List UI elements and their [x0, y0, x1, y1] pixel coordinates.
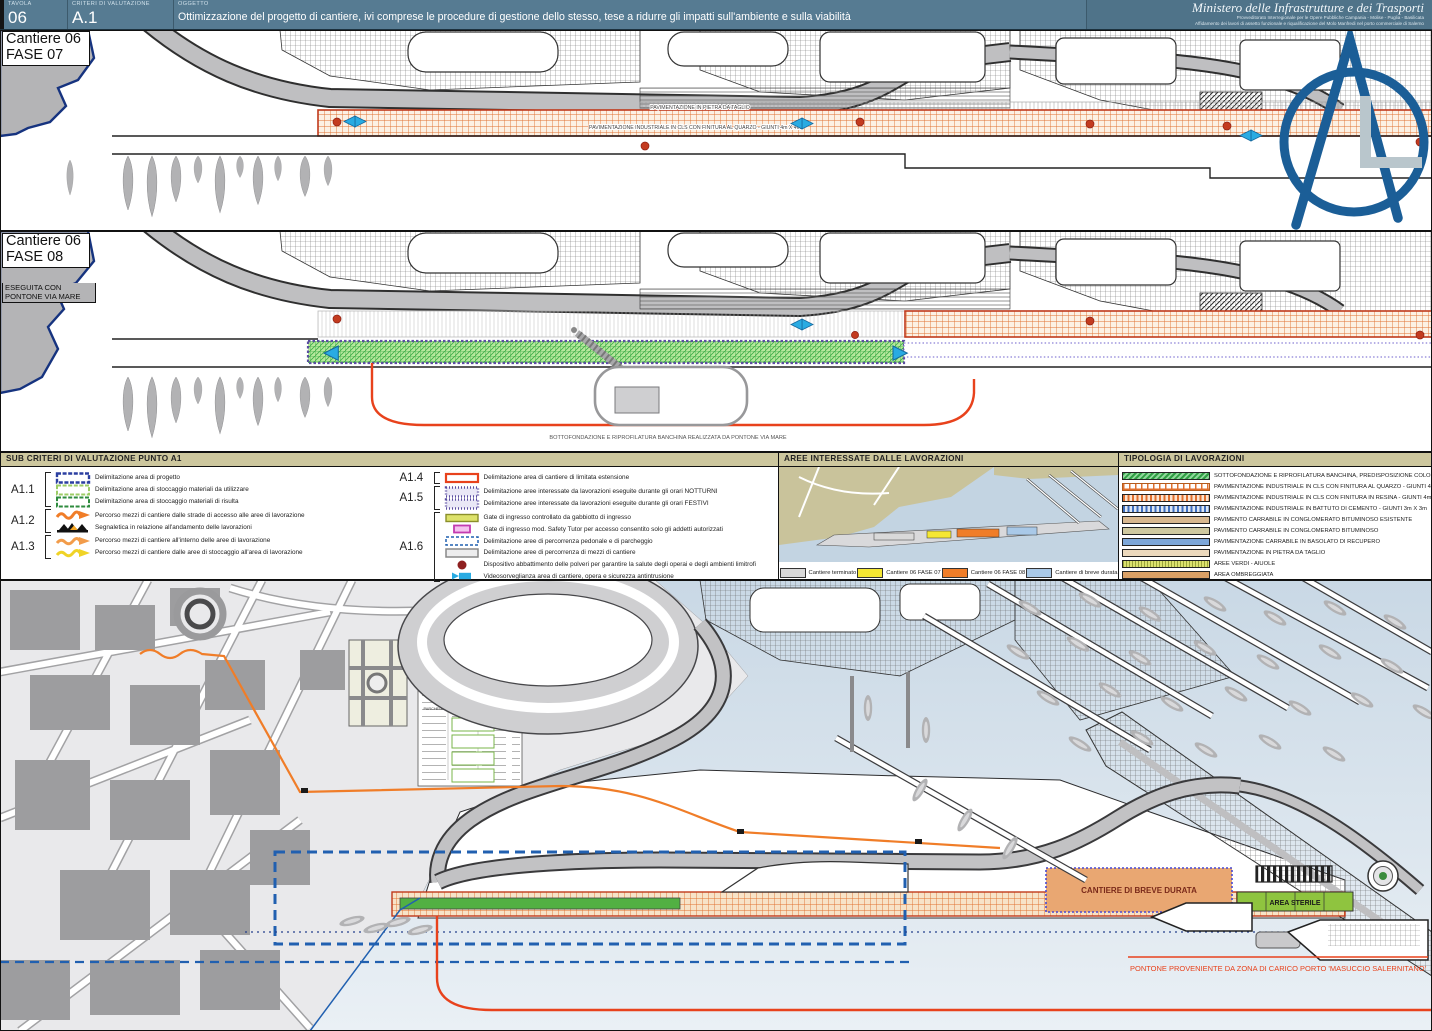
criteria-code: A1.3	[11, 541, 45, 553]
tipologia-row: AREE VERDI - AIUOLE	[1119, 558, 1431, 569]
bracket	[434, 512, 440, 583]
tan-swatch	[1122, 516, 1210, 524]
legend-label: Delimitazione area di progetto	[95, 474, 180, 481]
industriale-label: PAVIMENTAZIONE INDUSTRIALE IN CLS CON FI…	[589, 125, 801, 131]
title-block: TAVOLA 06 CRITERI DI VALUTAZIONE A.1 OGG…	[0, 0, 1432, 30]
rect-blue-swatch	[55, 472, 91, 484]
legend-label: Percorso mezzi di cantiere all'interno d…	[95, 537, 270, 544]
fase07-plan: PAVIMENTAZIONE IN PIETRA DA TAGLIO PAVIM…	[0, 30, 1432, 231]
tipologia-label: AREE VERDI - AIUOLE	[1214, 561, 1275, 567]
pontoon-caption: BOTTOFONDAZIONE E RIPROFILATURA BANCHINA…	[549, 435, 787, 441]
aree-body: Cantiere terminatoCantiere 06 FASE 07Can…	[779, 467, 1118, 580]
fase07-title: Cantiere 06 FASE 07	[2, 31, 90, 66]
tavola-label: TAVOLA	[8, 1, 63, 8]
tipologia-label: PAVIMENTAZIONE INDUSTRIALE IN CLS CON FI…	[1214, 495, 1431, 501]
criteria-items: Delimitazione aree interessate da lavora…	[444, 486, 779, 510]
legend-label: Cantiere 06 FASE 07	[886, 570, 940, 576]
verde-swatch	[1122, 560, 1210, 568]
legend-label: Delimitazione area di stoccaggio materia…	[95, 498, 239, 505]
pending-paving-strip	[318, 311, 905, 337]
arrow-orange-swatch	[55, 509, 91, 521]
helipad-icon	[1368, 861, 1398, 891]
rect-lightgreen-swatch	[55, 484, 91, 496]
tipologia-label: PAVIMENTAZIONE INDUSTRIALE IN BATTUTO DI…	[1214, 506, 1427, 512]
tipologia-row: PAVIMENTAZIONE IN PIETRA DA TAGLIO	[1119, 547, 1431, 558]
rect-dash-blue-swatch	[444, 535, 480, 547]
khaki-swatch	[1122, 527, 1210, 535]
tipologia-row: PAVIMENTAZIONE INDUSTRIALE IN BATTUTO DI…	[1119, 503, 1431, 514]
tipologia-label: PAVIMENTO CARRABILE IN CONGLOMERATO BITU…	[1214, 528, 1378, 534]
bracket	[45, 509, 51, 533]
tipologia-panel: TIPOLOGIA DI LAVORAZIONI SOTTOFONDAZIONE…	[1118, 452, 1432, 580]
legend-item: Dispositivo abbattimento delle polveri p…	[444, 559, 779, 571]
bracket	[434, 486, 440, 510]
criteria-group-a1-5: A1.5Delimitazione aree interessate da la…	[400, 486, 779, 510]
aree-title: AREE INTERESSATE DALLE LAVORAZIONI	[779, 453, 1118, 467]
criteri-code: A.1	[72, 8, 169, 28]
legend-label: Gate di ingresso controllato da gabbiott…	[484, 514, 631, 521]
legend-item: Segnaletica in relazione all'andamento d…	[55, 521, 390, 533]
ombra-swatch	[1122, 571, 1210, 579]
tipologia-label: AREA OMBREGGIATA	[1214, 572, 1273, 578]
sheet-title: Ottimizzazione del progetto di cantiere,…	[178, 8, 1082, 26]
color-swatch	[857, 568, 883, 578]
sub-criteri-title: SUB CRITERI DI VALUTAZIONE PUNTO A1	[1, 453, 778, 467]
criteri-cell: CRITERI DI VALUTAZIONE A.1	[68, 0, 174, 29]
legend-label: Delimitazione area di stoccaggio materia…	[95, 486, 249, 493]
bracket	[45, 535, 51, 559]
legend-label: Delimitazione aree di percorrenza pedona…	[484, 538, 653, 545]
roundabout	[177, 591, 223, 637]
tavola-cell: TAVOLA 06	[4, 0, 68, 29]
tipologia-row: PAVIMENTAZIONE INDUSTRIALE IN CLS CON FI…	[1119, 492, 1431, 503]
legend-label: Delimitazione area di cantiere di limita…	[484, 474, 630, 481]
ministry-cell: Ministero delle Infrastrutture e dei Tra…	[1087, 0, 1432, 29]
color-swatch	[780, 568, 806, 578]
mini-map	[779, 467, 1118, 562]
fase08-plan: BOTTOFONDAZIONE E RIPROFILATURA BANCHINA…	[0, 231, 1432, 452]
tipologia-row: PAVIMENTO CARRABILE IN CONGLOMERATO BITU…	[1119, 514, 1431, 525]
fase08-title: Cantiere 06 FASE 08	[2, 233, 90, 268]
legend-item: Percorso mezzi di cantiere all'interno d…	[55, 535, 390, 547]
legend-label: Delimitazione aree di percorrenza di mez…	[484, 549, 636, 556]
legend-label: Segnaletica in relazione all'andamento d…	[95, 524, 252, 531]
mini-map-legend: Cantiere terminatoCantiere 06 FASE 07Can…	[779, 568, 1118, 578]
pontone-label: PONTONE PROVENIENTE DA ZONA DI CARICO PO…	[1130, 964, 1427, 973]
legend-item: Delimitazione area di stoccaggio materia…	[55, 484, 390, 496]
pietra-strip	[640, 102, 1432, 110]
fase08-subtitle: ESEGUITA CON PONTONE VIA MARE	[2, 283, 96, 303]
legend-item: Delimitazione aree interessate da lavora…	[444, 486, 779, 498]
tipologia-body: SOTTOFONDAZIONE E RIPROFILATURA BANCHINA…	[1119, 467, 1431, 583]
criteria-code: A1.6	[400, 541, 434, 553]
quartz-paving-strip	[318, 110, 1432, 136]
criteria-group-a1-1: A1.1Delimitazione area di progettoDelimi…	[11, 472, 390, 507]
legend-label: Dispositivo abbattimento delle polveri p…	[484, 561, 756, 568]
map-legend-item: Cantiere di breve durata	[1026, 568, 1117, 578]
rect-yellowgreen-swatch	[444, 512, 480, 524]
tipologia-title: TIPOLOGIA DI LAVORAZIONI	[1119, 453, 1431, 467]
tipologia-label: SOTTOFONDAZIONE E RIPROFILATURA BANCHINA…	[1214, 473, 1431, 479]
rect-gray-swatch	[444, 547, 480, 559]
tipologia-row: PAVIMENTO CARRABILE IN CONGLOMERATO BITU…	[1119, 525, 1431, 536]
criteria-items: Percorso mezzi di cantiere dalle strade …	[55, 509, 390, 533]
criteria-code: A1.4	[400, 472, 434, 484]
legend-item: Delimitazione area di progetto	[55, 472, 390, 484]
criteria-group-a1-2: A1.2Percorso mezzi di cantiere dalle str…	[11, 509, 390, 533]
legend-item: Delimitazione aree di percorrenza pedona…	[444, 535, 779, 547]
color-swatch	[1026, 568, 1052, 578]
legend-label: Videosorveglianza area di cantiere, oper…	[484, 573, 674, 580]
color-swatch	[942, 568, 968, 578]
works-boundary-strip	[904, 343, 1432, 357]
legend-item: Delimitazione area di cantiere di limita…	[444, 472, 779, 484]
criteria-group-a1-3: A1.3Percorso mezzi di cantiere all'inter…	[11, 535, 390, 559]
cantiere-number: Cantiere 06	[6, 32, 81, 48]
ministry-sub2: Affidamento dei lavori di assetto funzio…	[1091, 21, 1424, 27]
bracket	[45, 472, 51, 507]
legend-label: Cantiere terminato	[809, 570, 857, 576]
blue-swatch	[1122, 538, 1210, 546]
tipologia-label: PAVIMENTAZIONE CARRABILE IN BASOLATO DI …	[1214, 539, 1380, 545]
criteria-group-a1-6: A1.6Gate di ingresso controllato da gabb…	[400, 512, 779, 583]
legend-label: Cantiere di breve durata	[1055, 570, 1117, 576]
dot-darkred-swatch	[444, 559, 480, 571]
criteria-items: Gate di ingresso controllato da gabbiott…	[444, 512, 779, 583]
map-legend-item: Cantiere terminato	[780, 568, 857, 578]
tavola-number: 06	[8, 8, 63, 28]
criteria-column-right: A1.4Delimitazione area di cantiere di li…	[390, 470, 779, 583]
quay-green-strip	[400, 898, 680, 909]
fase-number: FASE 07	[6, 48, 81, 64]
rect-dot-purple-swatch	[444, 486, 480, 498]
orange-dots-swatch	[1122, 494, 1210, 502]
ministry-name: Ministero delle Infrastrutture e dei Tra…	[1091, 1, 1424, 15]
legend-item: Delimitazione aree interessate da lavora…	[444, 498, 779, 510]
area-sterile-label: AREA STERILE	[1269, 900, 1320, 907]
criteria-items: Delimitazione area di cantiere di limita…	[444, 472, 779, 484]
cantiere-number: Cantiere 06	[6, 234, 81, 250]
blue-dots-swatch	[1122, 505, 1210, 513]
green-hatch-swatch	[1122, 472, 1210, 480]
legend-label: Percorso mezzi di cantiere dalle strade …	[95, 512, 305, 519]
sub-criteri-body: A1.1Delimitazione area di progettoDelimi…	[1, 467, 778, 583]
criteri-label: CRITERI DI VALUTAZIONE	[72, 1, 169, 8]
tipologia-label: PAVIMENTAZIONE INDUSTRIALE IN CLS CON FI…	[1214, 484, 1431, 490]
signal-swatch	[55, 521, 91, 533]
legend-item: Videosorveglianza area di cantiere, oper…	[444, 571, 779, 583]
oggetto-label: OGGETTO	[178, 1, 1082, 8]
legend-label: Delimitazione aree interessate da lavora…	[484, 500, 709, 507]
tipologia-row: PAVIMENTAZIONE INDUSTRIALE IN CLS CON FI…	[1119, 481, 1431, 492]
legend-item: Delimitazione aree di percorrenza di mez…	[444, 547, 779, 559]
orange-grid-swatch	[1122, 483, 1210, 491]
tipologia-label: PAVIMENTAZIONE IN PIETRA DA TAGLIO	[1214, 550, 1325, 556]
legend-item: Delimitazione area di stoccaggio materia…	[55, 496, 390, 508]
port-overview-map: PARCHEGGIO RISERVATO CAPITANERIA DI PORT…	[0, 580, 1432, 1031]
criteria-code: A1.1	[11, 484, 45, 496]
criteria-code: A1.5	[400, 492, 434, 504]
rect-dot-purple-swatch	[444, 498, 480, 510]
oggetto-cell: OGGETTO Ottimizzazione del progetto di c…	[174, 0, 1087, 29]
rect-red-swatch	[444, 472, 480, 484]
barrier-strip	[1256, 866, 1332, 882]
criteria-group-a1-4: A1.4Delimitazione area di cantiere di li…	[400, 472, 779, 484]
tipologia-row: SOTTOFONDAZIONE E RIPROFILATURA BANCHINA…	[1119, 470, 1431, 481]
legend-item: Percorso mezzi di cantiere dalle strade …	[55, 509, 390, 521]
legend-item: Gate di ingresso mod. Safety Tutor per a…	[444, 523, 779, 535]
tipologia-label: PAVIMENTO CARRABILE IN CONGLOMERATO BITU…	[1214, 517, 1412, 523]
quartz-paving-strip	[905, 311, 1432, 337]
tan2-swatch	[1122, 549, 1210, 557]
criteria-items: Delimitazione area di progettoDelimitazi…	[55, 472, 390, 507]
criteria-code: A1.2	[11, 515, 45, 527]
drawing-sheet: TAVOLA 06 CRITERI DI VALUTAZIONE A.1 OGG…	[0, 0, 1432, 1031]
legend-label: Delimitazione aree interessate da lavora…	[484, 488, 718, 495]
fase-number: FASE 08	[6, 250, 81, 266]
tipologia-row: AREA OMBREGGIATA	[1119, 569, 1431, 580]
arrow-yellow-swatch	[55, 547, 91, 559]
criteria-items: Percorso mezzi di cantiere all'interno d…	[55, 535, 390, 559]
legend-label: Cantiere 06 FASE 08	[971, 570, 1025, 576]
camera-cyan-swatch	[444, 570, 480, 582]
map-legend-item: Cantiere 06 FASE 07	[857, 568, 940, 578]
cantiere-breve-label: CANTIERE DI BREVE DURATA	[1081, 886, 1197, 895]
tipologia-row: PAVIMENTAZIONE CARRABILE IN BASOLATO DI …	[1119, 536, 1431, 547]
legend-label: Gate di ingresso mod. Safety Tutor per a…	[484, 526, 723, 533]
legend-item: Gate di ingresso controllato da gabbiott…	[444, 512, 779, 524]
legend-item: Percorso mezzi di cantiere dalle aree di…	[55, 547, 390, 559]
bracket	[434, 472, 440, 484]
aree-panel: AREE INTERESSATE DALLE LAVORAZIONI	[778, 452, 1119, 580]
rect-pink-swatch	[444, 523, 480, 535]
legend-label: Percorso mezzi di cantiere dalle aree di…	[95, 549, 303, 556]
sub-criteri-panel: SUB CRITERI DI VALUTAZIONE PUNTO A1 A1.1…	[0, 452, 779, 580]
road-hatch-band	[640, 289, 1010, 309]
rect-green-swatch	[55, 496, 91, 508]
criteria-column-left: A1.1Delimitazione area di progettoDelimi…	[1, 470, 390, 583]
pietra-label: PAVIMENTAZIONE IN PIETRA DA TAGLIO	[650, 105, 750, 111]
arrow-orange2-swatch	[55, 535, 91, 547]
map-legend-item: Cantiere 06 FASE 08	[942, 568, 1025, 578]
